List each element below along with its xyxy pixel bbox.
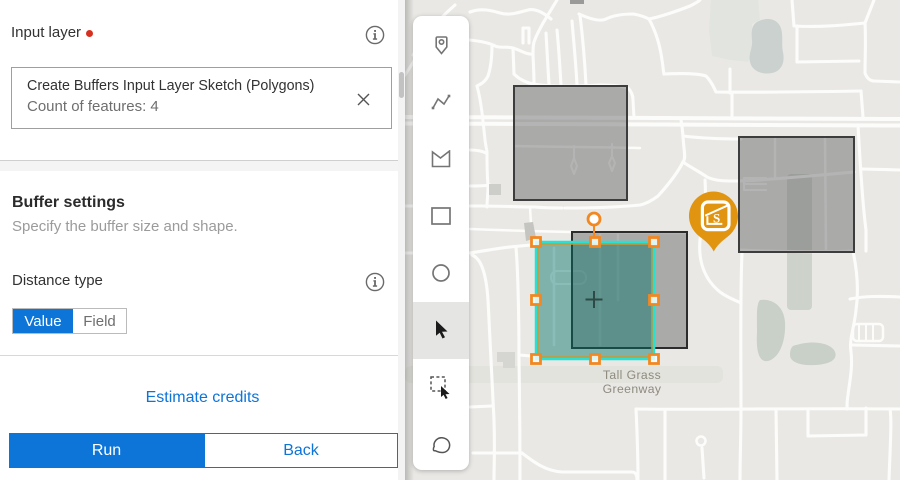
svg-text:Greenway: Greenway	[603, 382, 662, 396]
svg-text:Tall Grass: Tall Grass	[603, 368, 661, 382]
svg-text:S: S	[713, 211, 720, 226]
